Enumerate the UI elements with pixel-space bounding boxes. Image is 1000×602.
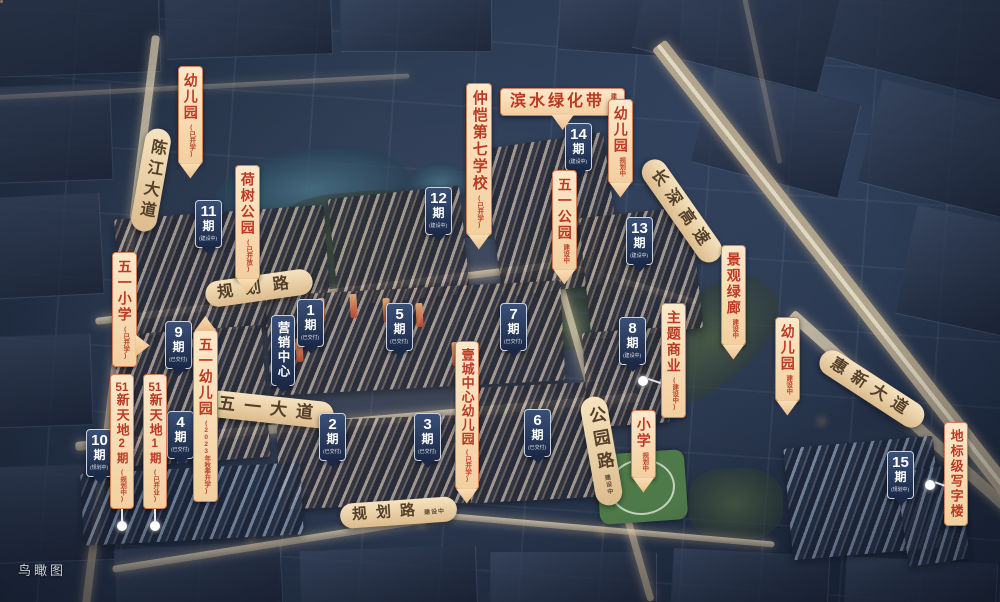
amenity-name: 五一小学 <box>117 259 133 323</box>
road-name: 规划路 <box>351 501 424 523</box>
arrow-down-icon <box>236 279 258 294</box>
amenity-name: 幼儿园 <box>780 324 796 372</box>
marker-box: 主题商业(建设中) <box>661 303 686 418</box>
phase-suffix: 期 <box>393 323 405 337</box>
brand-number: 51 <box>115 381 129 393</box>
amenity-status: 建设中 <box>785 375 792 395</box>
brand-number: 51 <box>148 381 162 393</box>
phase-flag-3: 3期(已交付) <box>414 413 441 461</box>
amenity-status: (2023年秋季开学) <box>203 420 210 495</box>
city-block <box>490 552 657 602</box>
connector-dot <box>117 521 127 531</box>
phase-status: (建设中) <box>630 251 648 258</box>
phase-number: 9 <box>174 325 182 341</box>
marker-box: 幼儿园建设中 <box>775 317 800 402</box>
connector-dot <box>925 480 935 490</box>
marker-heshu-park: 荷树公园(已开放) <box>235 165 260 294</box>
marker-landmark-office-tower: 地标级写字楼 <box>944 422 968 526</box>
storefront-sign <box>349 294 357 318</box>
phase-flag-2: 2期(已交付) <box>319 413 346 461</box>
phase-status: (建设中) <box>429 221 447 228</box>
phase-flag-6: 6期(已交付) <box>524 409 551 457</box>
phase-suffix: 期 <box>507 323 519 337</box>
amenity-status: (已开放) <box>245 239 252 273</box>
phase-number: 7 <box>509 307 517 323</box>
phase-number: 10 <box>91 433 108 449</box>
amenity-name: 新天地 <box>148 393 163 438</box>
marker-box: 荷树公园(已开放) <box>235 165 260 280</box>
tower-cluster-south <box>277 415 475 510</box>
phase-flag-1: 1期(已交付) <box>297 299 324 347</box>
marker-51xintiandi-phase1: 51新天地1期(已开业) <box>143 374 167 531</box>
arrow-down-icon <box>632 478 654 493</box>
phase-status: (已交付) <box>528 443 546 450</box>
marker-box: 51新天地2期(规划中) <box>110 374 134 509</box>
amenity-status: 规划中 <box>618 157 625 177</box>
arrow-down-icon <box>179 164 201 179</box>
arrow-down-icon <box>776 401 798 416</box>
amenity-name: 小学 <box>636 417 652 449</box>
map-caption: 鸟瞰图 <box>18 560 66 579</box>
amenity-name: 仲恺第七学校 <box>471 90 488 192</box>
connector-line <box>154 509 156 521</box>
amenity-status: (已开业) <box>152 469 159 503</box>
marker-kindergarten-n: 幼儿园规划中 <box>608 99 633 198</box>
phase-suffix: 期 <box>421 433 433 447</box>
amenity-status: (已开学) <box>188 124 195 158</box>
phase-number: 8 <box>628 321 636 337</box>
arrow-down-icon <box>609 183 631 198</box>
arrow-down-icon <box>722 345 744 360</box>
phase-suffix: 期 <box>93 449 105 463</box>
phase-suffix: 期 <box>894 471 906 485</box>
marker-box: 壹城中心幼儿园(已开学) <box>455 341 479 490</box>
marker-box: 滨水绿化带建设中 <box>500 88 625 116</box>
marker-wuyi-primary-school: 五一小学(已开学) <box>112 252 150 367</box>
city-block <box>164 0 333 60</box>
amenity-name: 幼儿园 <box>183 73 199 121</box>
phase-flag-8: 8期(建设中) <box>619 317 646 365</box>
amenity-name: 幼儿园 <box>613 106 629 154</box>
park-green <box>688 468 783 540</box>
marketing-center-label: 营销中心 <box>274 321 293 379</box>
phase-number: 12 <box>430 191 447 207</box>
phase-number: 5 <box>395 307 403 323</box>
aerial-masterplan-map: 陈江大道 规划路 五一大道 公园路建设中 规划路建设中 长深高速 惠新大道 1期… <box>0 0 1000 602</box>
connector-dot <box>638 376 648 386</box>
marker-wuyi-kindergarten: 五一幼儿园(2023年秋季开学) <box>193 316 218 502</box>
phase-flag-14: 14期(建设中) <box>565 123 592 171</box>
amenity-status: (已开学) <box>464 449 471 483</box>
amenity-name: 主题商业 <box>666 310 682 374</box>
storefront-sign <box>415 303 423 327</box>
arrow-down-icon <box>552 115 574 130</box>
phase-status: (已交付) <box>323 447 341 454</box>
phase-flag-12: 12期(建设中) <box>425 187 452 235</box>
phase-flag-15: 15期(规划中) <box>887 451 914 499</box>
amenity-status: 规划中 <box>641 452 648 472</box>
phase-flag-9: 9期(已交付) <box>165 321 192 369</box>
city-block <box>0 192 105 300</box>
city-block <box>0 0 161 78</box>
arrow-up-icon <box>194 316 216 331</box>
phase-flag-7: 7期(已交付) <box>500 303 527 351</box>
amenity-status: 建设中 <box>562 244 569 264</box>
amenity-name: 景观绿廊 <box>726 252 742 316</box>
phase-status: (已交付) <box>418 447 436 454</box>
marker-box: 小学规划中 <box>631 410 656 479</box>
marker-box: 五一公园建设中 <box>552 170 577 271</box>
road-status: 建设中 <box>424 509 445 516</box>
city-block <box>0 333 94 429</box>
phase-suffix: 期 <box>626 337 638 351</box>
arrow-down-icon <box>553 270 575 285</box>
phase-number: 2 <box>328 417 336 433</box>
marker-jingguan-greenway: 景观绿廊建设中 <box>721 245 746 360</box>
arrow-down-icon <box>456 489 478 504</box>
amenity-status: (规划中) <box>119 469 126 503</box>
marker-box: 五一小学(已开学) <box>112 252 137 367</box>
marker-binshui-greenbelt: 滨水绿化带建设中 <box>500 88 625 130</box>
phase-suffix: 期 <box>633 237 645 251</box>
arrow-down-icon <box>468 235 490 250</box>
phase-flag-11: 11期(建设中) <box>195 200 222 248</box>
amenity-name: 地标级写字楼 <box>949 429 964 519</box>
marker-box: 幼儿园(已开学) <box>178 66 203 165</box>
amenity-name: 五一幼儿园 <box>198 337 214 417</box>
amenity-name: 新天地 <box>115 393 130 438</box>
phase-number: 13 <box>631 221 648 237</box>
amenity-status: (已开学) <box>122 326 129 360</box>
connector-dot <box>150 521 160 531</box>
marker-box: 仲恺第七学校(已开学) <box>466 83 492 236</box>
phase-status: (已交付) <box>171 445 189 452</box>
road-status: 建设中 <box>603 474 613 496</box>
phase-flag-4: 4期(已交付) <box>167 411 194 459</box>
phase-number: 6 <box>533 413 541 429</box>
marketing-center-flag: 营销中心 <box>271 315 295 386</box>
marker-yicheng-center-kindergarten: 壹城中心幼儿园(已开学) <box>455 341 479 504</box>
amenity-phase: 1期 <box>149 438 161 466</box>
amenity-name: 壹城中心幼儿园 <box>460 348 475 446</box>
marker-box: 五一幼儿园(2023年秋季开学) <box>193 330 218 502</box>
phase-suffix: 期 <box>572 143 584 157</box>
marker-kindergarten-nw: 幼儿园(已开学) <box>178 66 203 179</box>
marker-box: 51新天地1期(已开业) <box>143 374 167 509</box>
marker-box: 幼儿园规划中 <box>608 99 633 184</box>
phase-status: (建设中) <box>199 234 217 241</box>
city-block <box>299 545 478 602</box>
phase-number: 1 <box>306 303 314 319</box>
phase-status: (建设中) <box>623 351 641 358</box>
amenity-phase: 2期 <box>116 438 128 466</box>
phase-status: (规划中) <box>891 485 909 492</box>
amenity-status: (建设中) <box>671 377 678 411</box>
phase-status: (已交付) <box>390 337 408 344</box>
arrow-right-icon <box>136 335 150 357</box>
marker-zhongkai-no7-school: 仲恺第七学校(已开学) <box>466 83 492 250</box>
amenity-status: (已开学) <box>476 195 483 229</box>
phase-flag-10: 10期(规划中) <box>86 429 113 477</box>
street-lights <box>0 0 3 3</box>
phase-number: 4 <box>176 415 184 431</box>
amenity-name: 滨水绿化带 <box>510 94 605 111</box>
phase-status: (已交付) <box>169 355 187 362</box>
city-block <box>340 0 492 52</box>
amenity-name: 五一公园 <box>557 177 573 241</box>
phase-suffix: 期 <box>304 319 316 333</box>
phase-number: 3 <box>423 417 431 433</box>
phase-number: 11 <box>201 204 217 220</box>
connector-line <box>121 509 123 521</box>
phase-status: (建设中) <box>569 157 587 164</box>
marker-51xintiandi-phase2: 51新天地2期(规划中) <box>110 374 134 531</box>
phase-number: 15 <box>892 455 909 471</box>
phase-status: (规划中) <box>90 463 108 470</box>
phase-flag-13: 13期(建设中) <box>626 217 653 265</box>
marker-box: 地标级写字楼 <box>944 422 968 526</box>
marker-kindergarten-e: 幼儿园建设中 <box>775 317 800 416</box>
phase-suffix: 期 <box>432 207 444 221</box>
marker-primary-school-planned: 小学规划中 <box>631 410 656 493</box>
phase-suffix: 期 <box>202 220 214 234</box>
phase-suffix: 期 <box>172 341 184 355</box>
amenity-status: 建设中 <box>731 319 738 339</box>
marker-box: 景观绿廊建设中 <box>721 245 746 346</box>
marker-wuyi-park: 五一公园建设中 <box>552 170 577 285</box>
phase-status: (已交付) <box>504 337 522 344</box>
phase-suffix: 期 <box>326 433 338 447</box>
amenity-name: 荷树公园 <box>240 172 256 236</box>
marker-theme-commercial: 主题商业(建设中) <box>661 303 686 418</box>
phase-flag-5: 5期(已交付) <box>386 303 413 351</box>
phase-status: (已交付) <box>301 333 319 340</box>
phase-suffix: 期 <box>531 429 543 443</box>
phase-suffix: 期 <box>174 431 186 445</box>
